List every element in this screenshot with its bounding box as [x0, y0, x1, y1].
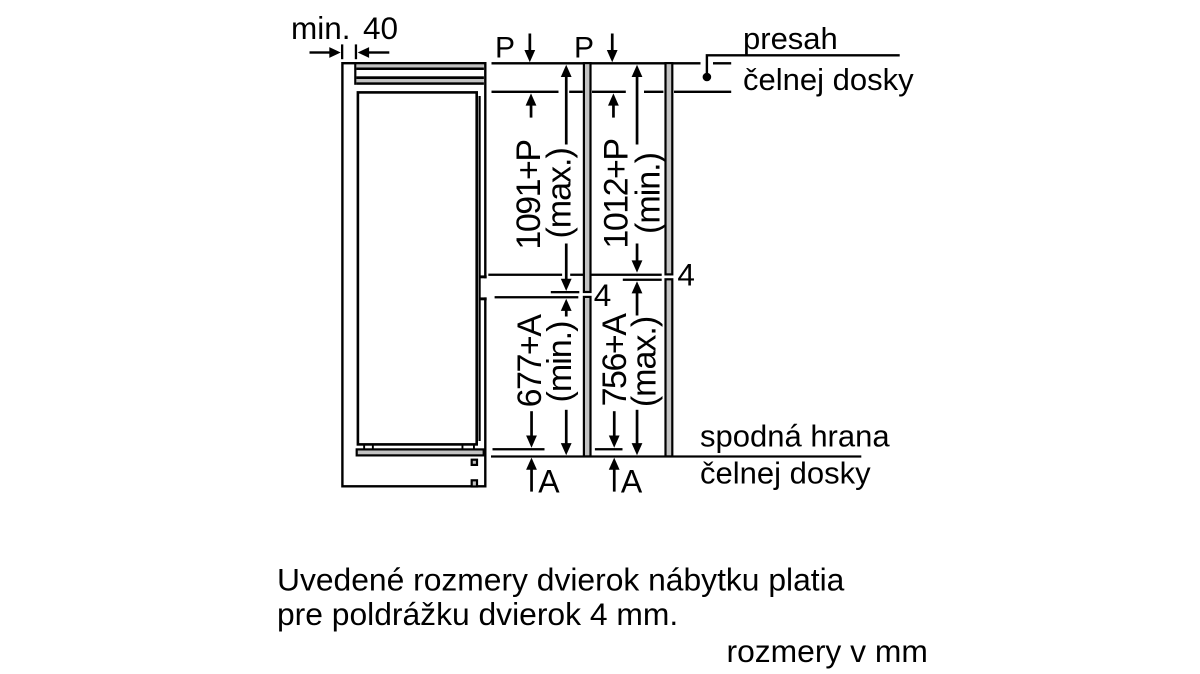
svg-text:(max.): (max.): [541, 148, 579, 238]
svg-text:(min.): (min.): [630, 153, 668, 234]
svg-text:pre poldrážku dvierok 4 mm.: pre poldrážku dvierok 4 mm.: [277, 596, 678, 632]
svg-text:čelnej dosky: čelnej dosky: [700, 455, 871, 490]
svg-text:A: A: [538, 463, 560, 499]
svg-text:40: 40: [363, 10, 398, 46]
svg-text:rozmery v mm: rozmery v mm: [727, 633, 928, 669]
svg-text:(max.): (max.): [626, 317, 664, 407]
svg-text:4: 4: [677, 257, 695, 293]
svg-text:presah: presah: [743, 21, 838, 56]
svg-text:(min.): (min.): [541, 322, 579, 403]
svg-text:A: A: [621, 463, 643, 499]
svg-text:P: P: [495, 32, 515, 65]
svg-text:Uvedené rozmery dvierok nábytk: Uvedené rozmery dvierok nábytku platia: [277, 562, 845, 598]
svg-text:čelnej dosky: čelnej dosky: [743, 62, 914, 97]
svg-text:P: P: [574, 32, 594, 65]
svg-text:spodná hrana: spodná hrana: [700, 418, 890, 453]
svg-text:4: 4: [594, 277, 612, 313]
svg-text:min.: min.: [291, 10, 351, 46]
